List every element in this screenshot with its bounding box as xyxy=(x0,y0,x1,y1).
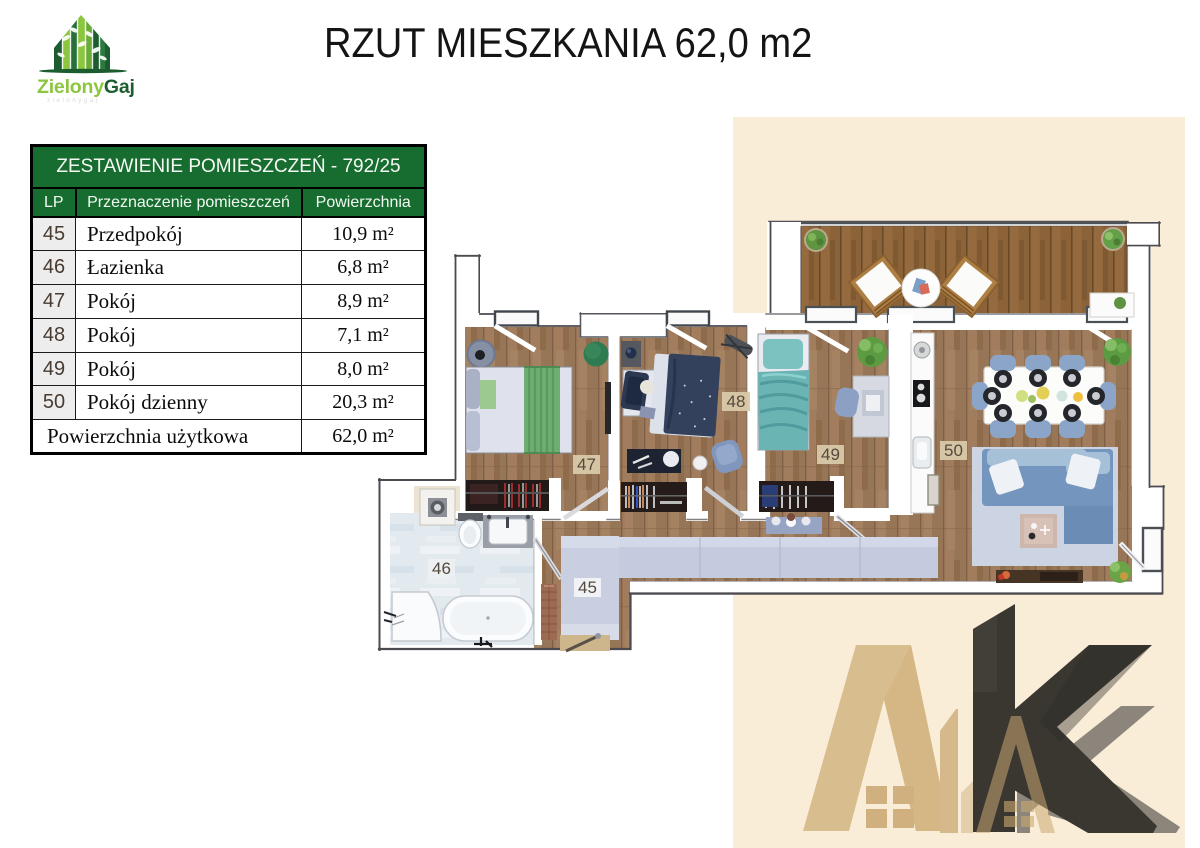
svg-text:50: 50 xyxy=(944,441,963,460)
svg-text:zielonygaj: zielonygaj xyxy=(47,98,100,104)
svg-text:46: 46 xyxy=(432,559,451,578)
svg-text:45: 45 xyxy=(578,578,597,597)
svg-text:49: 49 xyxy=(821,445,840,464)
svg-text:47: 47 xyxy=(577,455,596,474)
svg-text:ZielonyGaj: ZielonyGaj xyxy=(37,76,135,98)
svg-text:48: 48 xyxy=(727,392,746,411)
